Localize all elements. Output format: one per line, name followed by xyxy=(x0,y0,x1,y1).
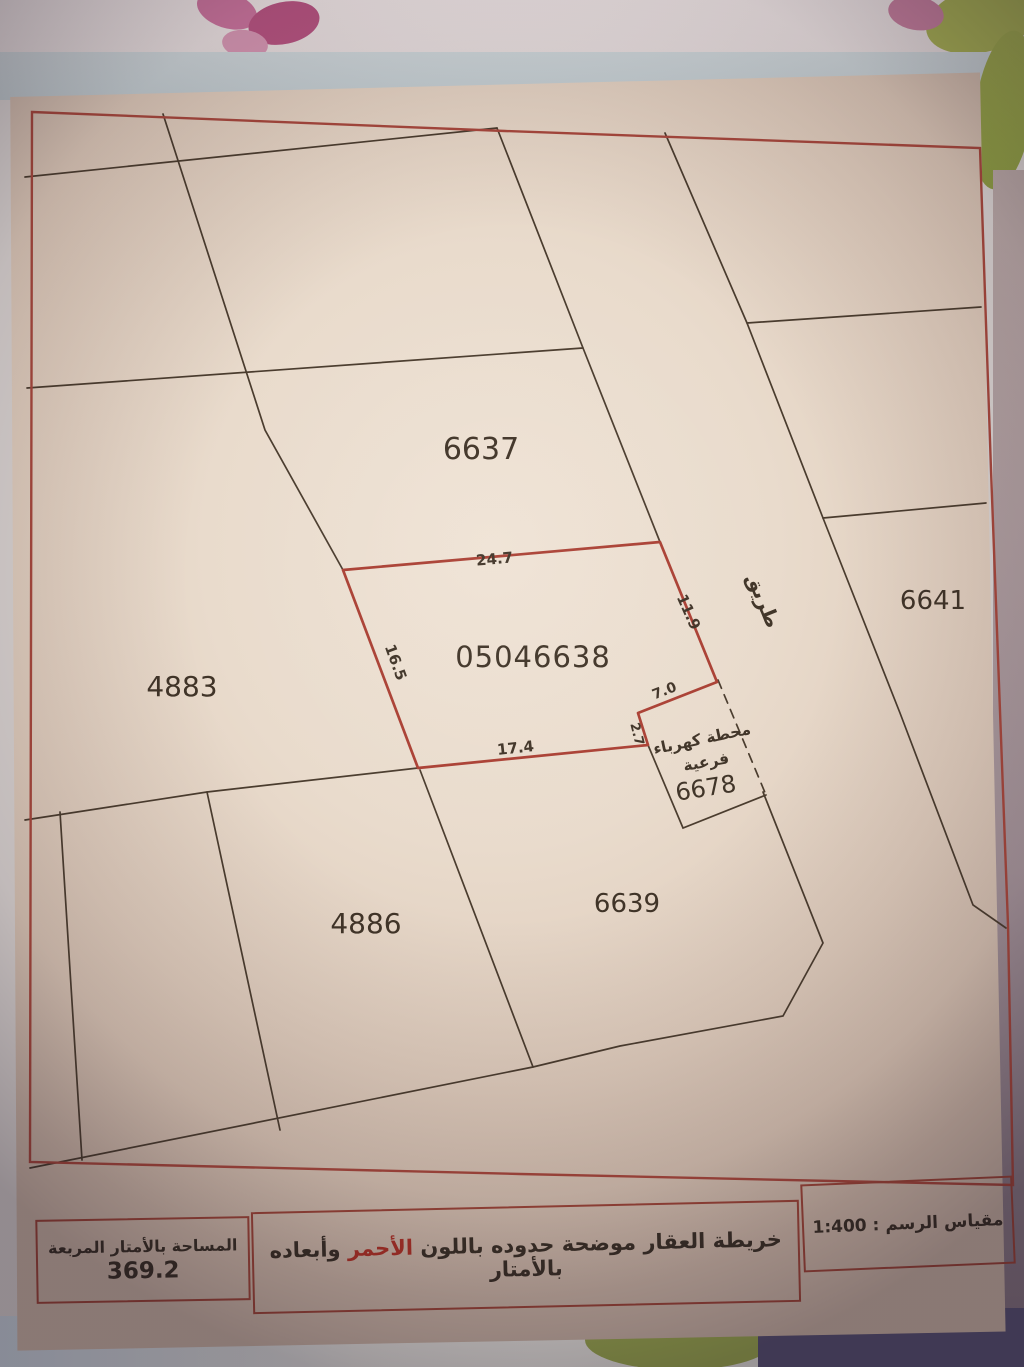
dim-bottom: 17.4 xyxy=(496,737,535,759)
dim-left: 16.5 xyxy=(381,642,411,683)
parcel-6678-label: 6678 xyxy=(673,769,738,806)
subject-parcel-number: 05046638 xyxy=(455,640,611,674)
scale-label: مقياس الرسم : 1:400 xyxy=(812,1210,1004,1238)
map-title: خريطة العقار موضحة حدوده باللون الأحمر و… xyxy=(264,1227,789,1287)
cadastral-map: 24.7 11.9 16.5 17.4 7.0 2.7 6637 6641 48… xyxy=(0,0,1024,1367)
area-value: 369.2 xyxy=(107,1257,180,1284)
map-title-red-word: الأحمر xyxy=(348,1236,414,1261)
substation-labels: محطة كهرباء فرعية 6678 xyxy=(652,720,753,807)
area-label: المساحة بالأمتار المربعة xyxy=(48,1235,238,1257)
parcel-numbers: 6637 6641 4883 4886 6639 05046638 xyxy=(146,432,966,940)
photo-of-cadastral-map: 24.7 11.9 16.5 17.4 7.0 2.7 6637 6641 48… xyxy=(0,0,1024,1367)
parcel-4883-label: 4883 xyxy=(146,670,217,703)
map-title-box: خريطة العقار موضحة حدوده باللون الأحمر و… xyxy=(251,1200,801,1314)
parcel-6641-label: 6641 xyxy=(900,586,966,616)
dim-top: 24.7 xyxy=(475,548,513,569)
parcel-6639-label: 6639 xyxy=(594,889,660,919)
parcel-6637-label: 6637 xyxy=(443,432,519,467)
substation-label-line1: محطة كهرباء xyxy=(652,720,753,758)
dim-right: 11.9 xyxy=(673,591,704,632)
road-label: طريق xyxy=(742,570,786,632)
map-title-prefix: خريطة العقار موضحة حدوده باللون xyxy=(413,1227,782,1259)
parcel-4886-label: 4886 xyxy=(330,907,401,940)
scale-box: مقياس الرسم : 1:400 xyxy=(800,1176,1015,1273)
area-box: المساحة بالأمتار المربعة 369.2 xyxy=(35,1216,250,1304)
dim-notch-side: 2.7 xyxy=(626,721,646,747)
